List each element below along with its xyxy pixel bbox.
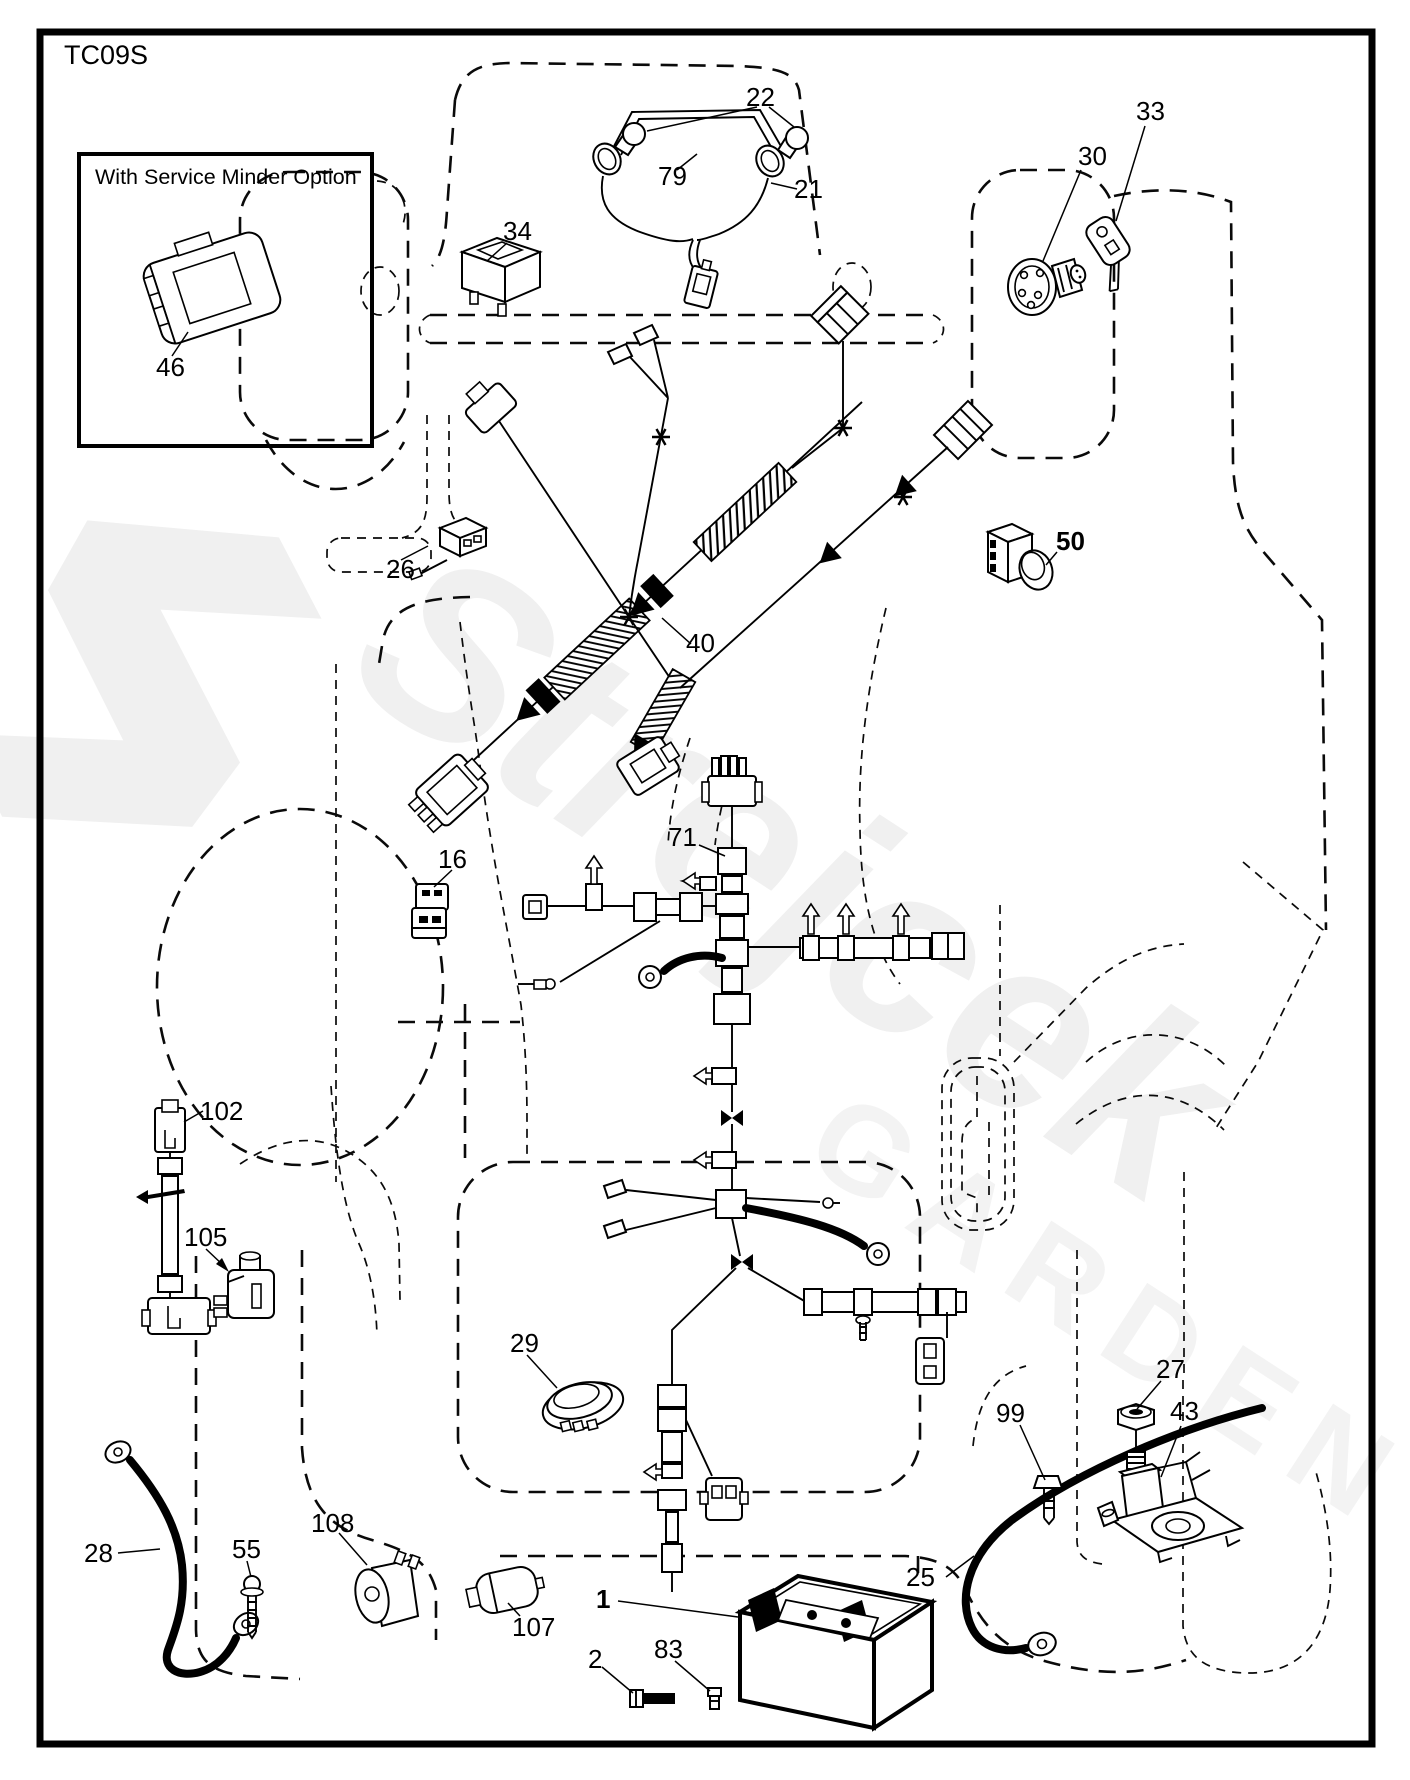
part-label-22: 22 (746, 84, 775, 110)
part-label-25: 25 (906, 1564, 935, 1590)
part-label-55: 55 (232, 1536, 261, 1562)
part-label-29: 29 (510, 1330, 539, 1356)
parts-diagram-page: Strejcek GARDEN (0, 0, 1410, 1780)
part-label-40: 40 (686, 630, 715, 656)
part-label-30: 30 (1078, 143, 1107, 169)
part-label-71: 71 (668, 824, 697, 850)
part-label-27: 27 (1156, 1356, 1185, 1382)
part-label-26: 26 (386, 556, 415, 582)
part-label-50: 50 (1056, 528, 1085, 554)
part-label-21: 21 (794, 176, 823, 202)
part-label-99: 99 (996, 1400, 1025, 1426)
part-label-46: 46 (156, 354, 185, 380)
part-label-102: 102 (200, 1098, 243, 1124)
part-label-16: 16 (438, 846, 467, 872)
part-label-105: 105 (184, 1224, 227, 1250)
part-label-2: 2 (588, 1646, 602, 1672)
part-label-79: 79 (658, 163, 687, 189)
part-label-34: 34 (503, 218, 532, 244)
part-label-28: 28 (84, 1540, 113, 1566)
part-label-33: 33 (1136, 98, 1165, 124)
part-label-108: 108 (311, 1510, 354, 1536)
part-label-1: 1 (596, 1586, 610, 1612)
part-label-107: 107 (512, 1614, 555, 1640)
part-labels-layer: 1216212225262728293033344043465055717983… (0, 0, 1410, 1780)
part-label-83: 83 (654, 1636, 683, 1662)
part-label-43: 43 (1170, 1398, 1199, 1424)
